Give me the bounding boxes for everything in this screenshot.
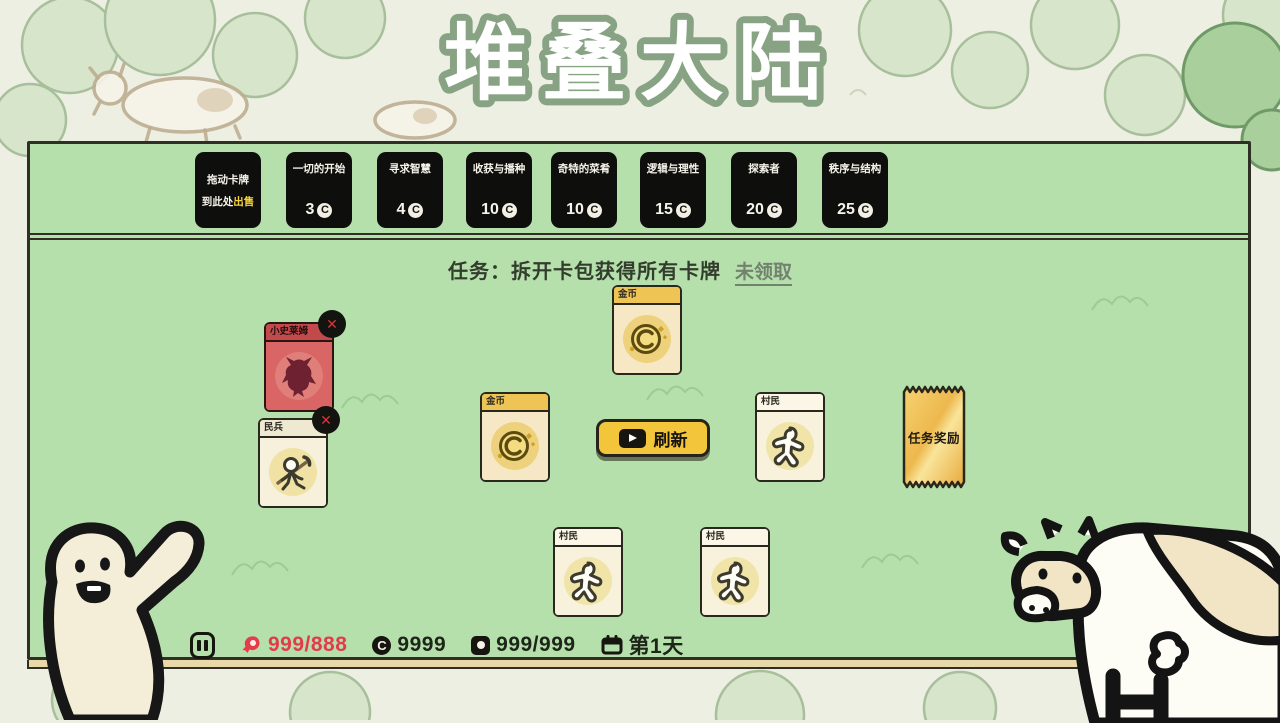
- grass-scribble: [645, 380, 709, 406]
- quest-row: 任务：拆开卡包获得所有卡牌 未领取: [0, 255, 1240, 286]
- grass-scribble: [340, 388, 404, 414]
- sell-zone[interactable]: 拖动卡牌 到此处出售: [195, 152, 261, 228]
- pack-button-explorers[interactable]: 探索者 20: [731, 152, 797, 228]
- sell-zone-line1: 拖动卡牌: [207, 174, 249, 186]
- grass-scribble: [1090, 290, 1154, 316]
- pack-button-seeking-wisdom[interactable]: 寻求智慧 4: [377, 152, 443, 228]
- attack-icon[interactable]: [318, 310, 346, 338]
- card-coin[interactable]: 金币: [480, 392, 550, 482]
- coin-icon: [408, 203, 423, 218]
- coin-icon: [858, 203, 873, 218]
- pause-button[interactable]: [190, 632, 215, 659]
- coin-icon: [587, 203, 602, 218]
- pack-button-logic-and-reason[interactable]: 逻辑与理性 15: [640, 152, 706, 228]
- pack-button-humble-beginnings[interactable]: 一切的开始 3: [286, 152, 352, 228]
- status-bar: 999/888 9999 999/999 第1天: [190, 629, 684, 661]
- coin-icon: [372, 636, 391, 655]
- sell-highlight: 出售: [233, 196, 254, 208]
- game-title: 堆叠大陆: [0, 0, 1280, 125]
- sell-zone-line2: 到此处出售: [202, 196, 255, 208]
- card-count-icon: [471, 636, 490, 655]
- coin-sprite: [492, 423, 538, 469]
- card-villager[interactable]: 村民: [700, 527, 770, 617]
- quest-label: 任务：拆开卡包获得所有卡牌: [448, 255, 721, 284]
- quest-reward-ticket[interactable]: 任务奖励: [902, 383, 966, 491]
- villager-sprite: [712, 558, 758, 604]
- coin-icon: [676, 203, 691, 218]
- pack-button-reap-and-sow[interactable]: 收获与播种 10: [466, 152, 532, 228]
- card-militia[interactable]: 民兵: [258, 418, 328, 508]
- refresh-button[interactable]: 刷新: [596, 419, 710, 457]
- card-coin[interactable]: 金币: [612, 285, 682, 375]
- villager-sprite: [767, 423, 813, 469]
- villager-sprite: [565, 558, 611, 604]
- card-count-stat: 999/999: [471, 633, 575, 657]
- pack-button-curious-cuisine[interactable]: 奇特的菜肴 10: [551, 152, 617, 228]
- food-stat: 999/888: [240, 633, 347, 657]
- card-villager[interactable]: 村民: [553, 527, 623, 617]
- pack-button-order-and-structure[interactable]: 秩序与结构 25: [822, 152, 888, 228]
- video-ad-icon: [619, 429, 646, 448]
- enemy-sprite: [276, 353, 322, 399]
- quest-claim-link[interactable]: 未领取: [735, 257, 792, 286]
- card-villager[interactable]: 村民: [755, 392, 825, 482]
- coin-sprite: [624, 316, 670, 362]
- grass-scribble: [860, 548, 924, 574]
- food-icon: [240, 634, 262, 656]
- day-stat: 第1天: [601, 630, 684, 660]
- ticket-label: 任务奖励: [902, 428, 966, 447]
- svg-text:堆叠大陆: 堆叠大陆: [444, 16, 836, 110]
- board-table-edge: [27, 660, 1251, 669]
- coin-icon: [317, 203, 332, 218]
- calendar-icon: [601, 634, 623, 656]
- shop-divider: [27, 233, 1251, 240]
- coins-stat: 9999: [372, 633, 446, 657]
- coin-icon: [502, 203, 517, 218]
- militia-sprite: [270, 449, 316, 495]
- grass-scribble: [230, 555, 294, 581]
- coin-icon: [767, 203, 782, 218]
- attack-icon[interactable]: [312, 406, 340, 434]
- card-enemy[interactable]: 小史莱姆: [264, 322, 334, 412]
